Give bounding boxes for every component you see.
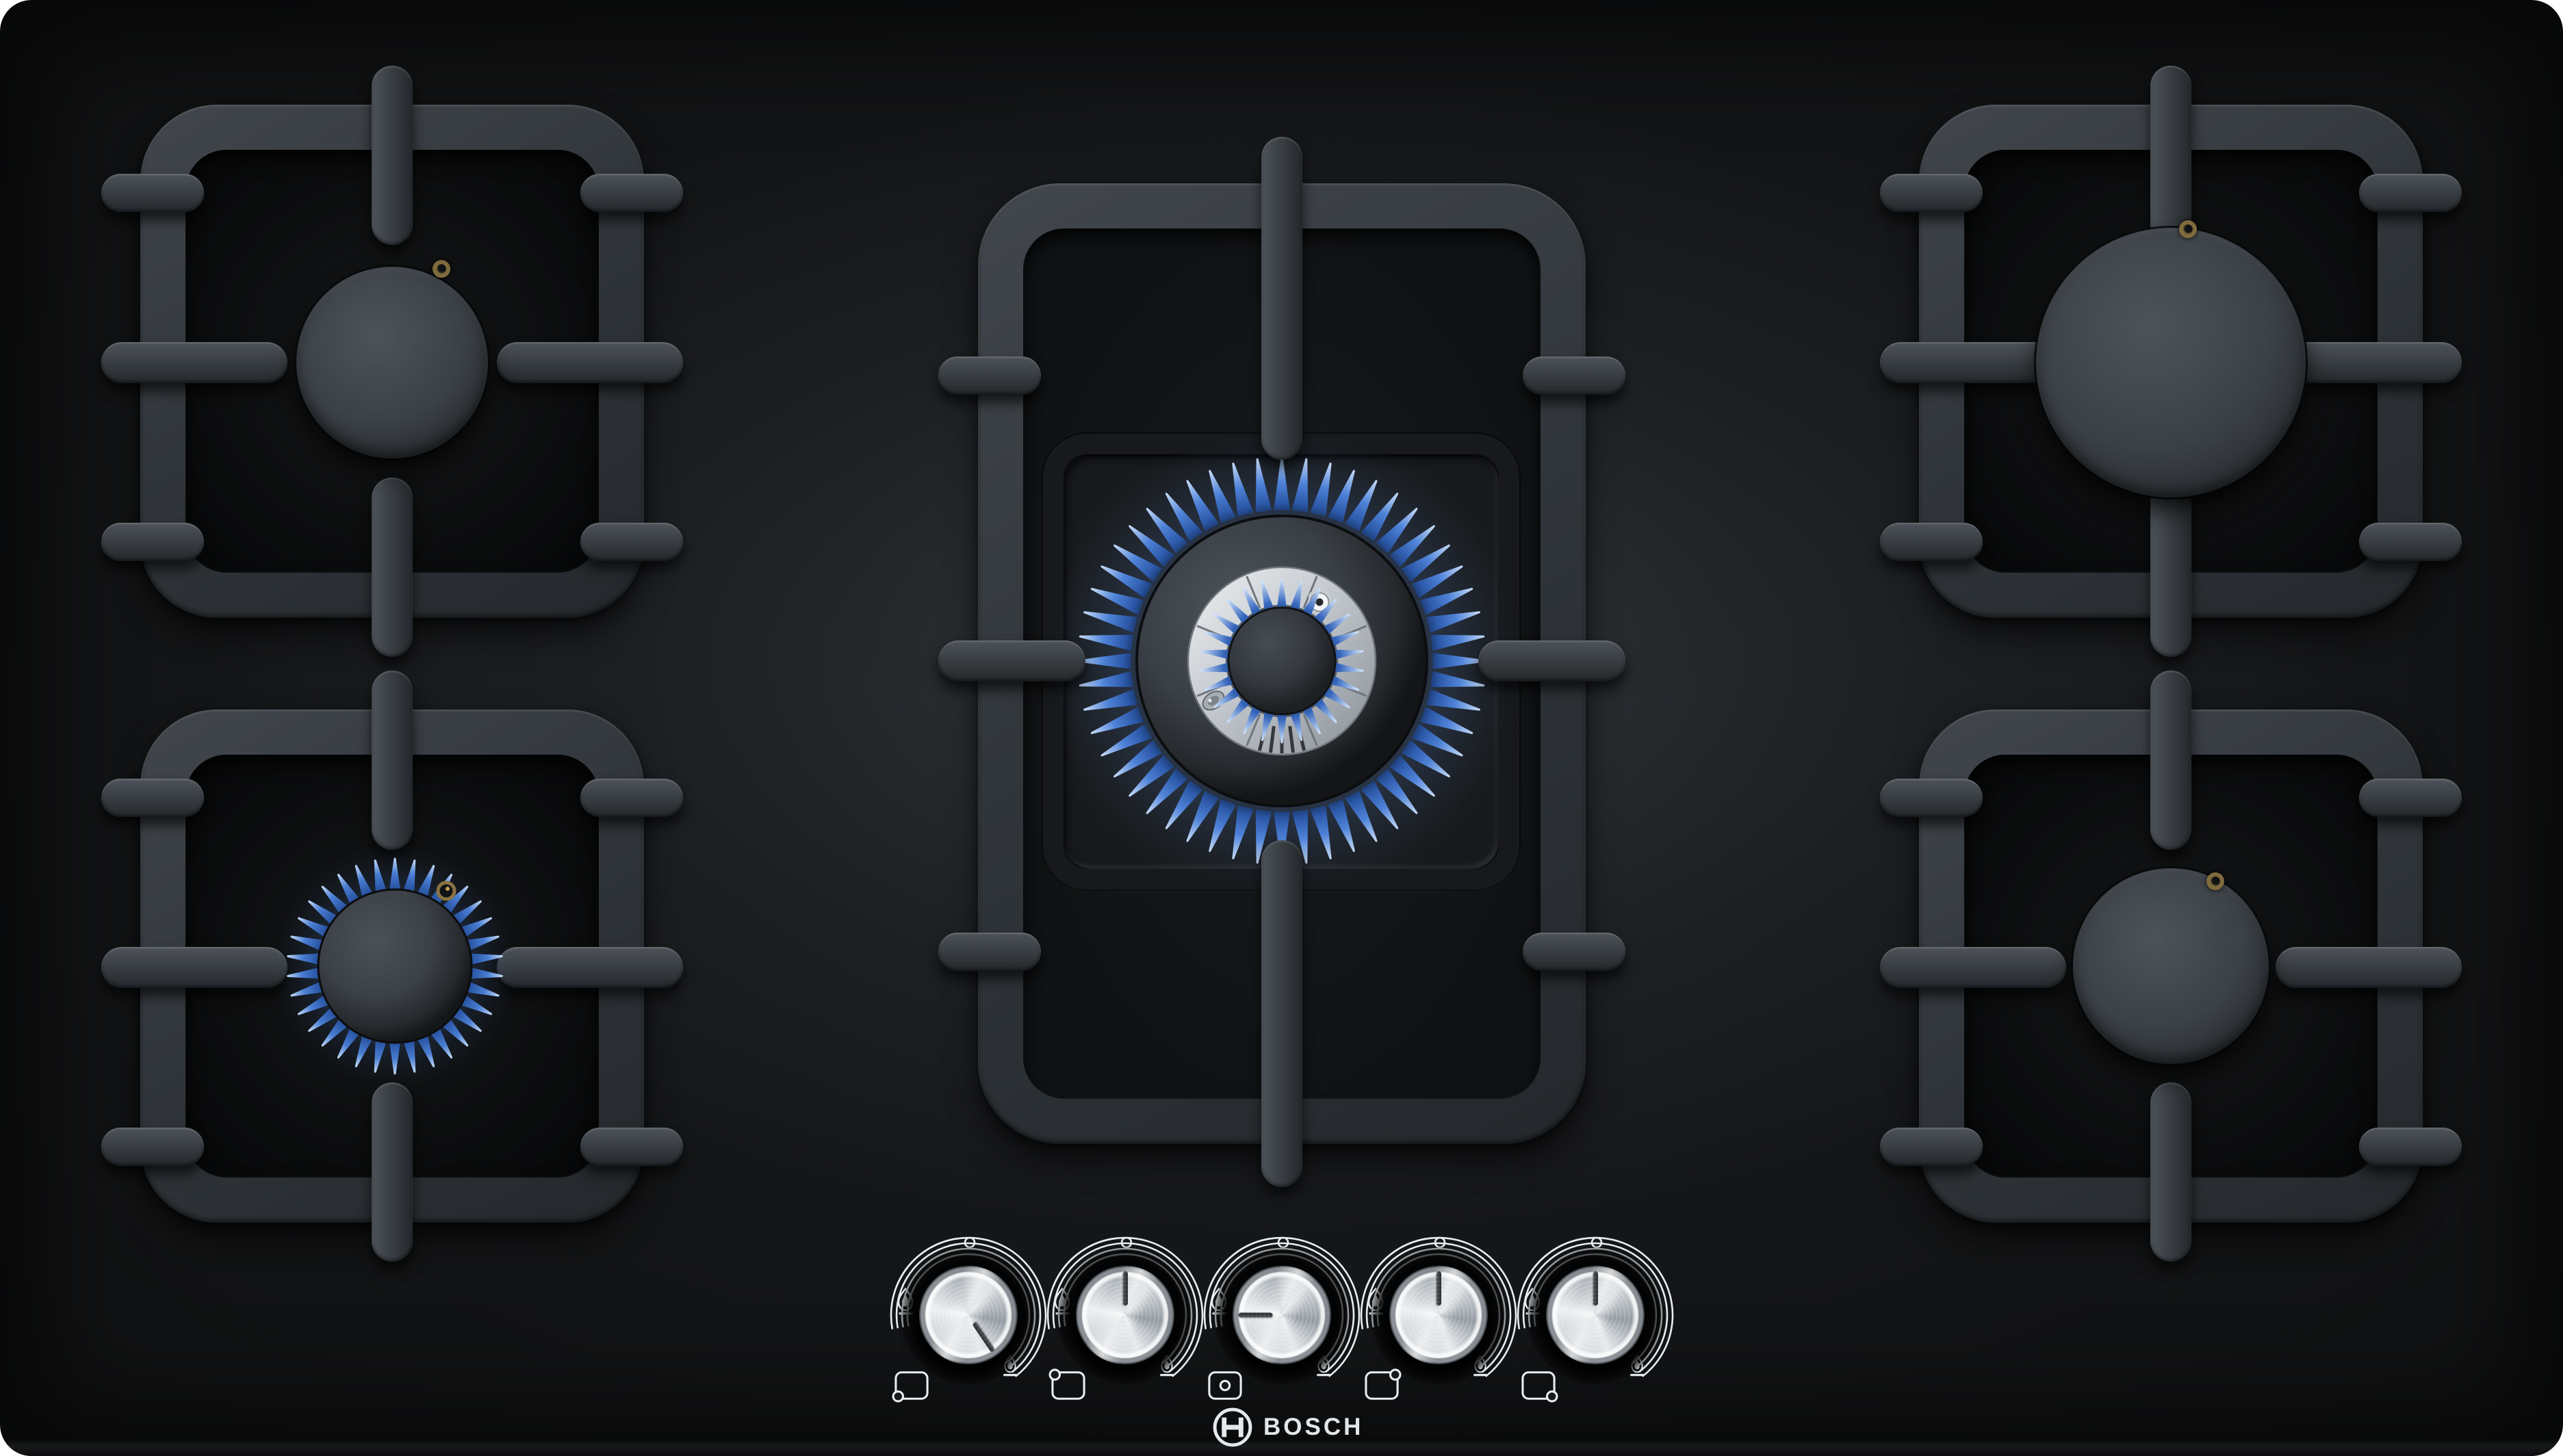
knob-center-wok[interactable] <box>1193 1226 1371 1431</box>
grate-stub <box>2359 174 2462 212</box>
bosch-logo: BOSCH <box>1212 1407 1363 1448</box>
spark-igniter-icon <box>438 883 454 899</box>
grate-stub <box>580 523 683 561</box>
grate-stub <box>101 1128 204 1166</box>
grate-finger <box>372 671 413 850</box>
spark-igniter-icon <box>2206 872 2224 890</box>
grate-stub <box>2359 523 2462 561</box>
knob-pointer <box>1238 1313 1272 1318</box>
burner-position-icon <box>892 1368 931 1403</box>
grate-finger <box>2150 671 2191 850</box>
grate-finger <box>101 947 287 988</box>
grate-finger <box>2150 478 2191 657</box>
burner-dot <box>893 1392 903 1401</box>
grate-finger <box>497 947 683 988</box>
grate-stub <box>101 779 204 817</box>
burner-cap-back-right <box>2036 228 2306 497</box>
burner-dot <box>1220 1381 1229 1390</box>
burner-position-icon <box>1519 1368 1558 1403</box>
product-photo-stage: BOSCH <box>0 0 2563 1456</box>
wok-inner-cap <box>1228 608 1335 714</box>
grate-finger <box>2150 66 2191 245</box>
knob-dial[interactable] <box>1076 1266 1174 1364</box>
burner-dot <box>1391 1370 1400 1379</box>
grate-stub <box>101 174 204 212</box>
burner-cap-back-left <box>296 267 488 458</box>
knob-dial[interactable] <box>919 1266 1018 1364</box>
grate-stub <box>580 174 683 212</box>
knob-pointer <box>1593 1271 1598 1305</box>
grate-finger <box>2276 947 2462 988</box>
knob-dial[interactable] <box>1389 1266 1488 1364</box>
knob-front-left[interactable] <box>879 1226 1057 1431</box>
knob-dial[interactable] <box>1546 1266 1645 1364</box>
grate-finger <box>101 342 287 383</box>
grate-finger <box>372 478 413 657</box>
knob-pointer <box>1437 1271 1441 1305</box>
grate-stub <box>580 779 683 817</box>
knob-front-right[interactable] <box>1506 1226 1684 1431</box>
burner-cap-front-right <box>2073 868 2269 1064</box>
gas-hob-glass-surface: BOSCH <box>0 0 2563 1456</box>
grate-stub <box>1880 523 1983 561</box>
grate-stub <box>101 523 204 561</box>
grate-finger <box>2150 1082 2191 1262</box>
grate-finger <box>1880 947 2066 988</box>
grate-stub <box>1880 779 1983 817</box>
burner-dot <box>1050 1370 1059 1379</box>
burner-cap-front-left <box>318 889 472 1043</box>
grate-stub <box>1880 1128 1983 1166</box>
grate-stub <box>1880 174 1983 212</box>
spark-igniter-icon <box>433 260 450 278</box>
knob-back-left[interactable] <box>1036 1226 1214 1431</box>
grate-finger <box>372 1082 413 1262</box>
knob-back-right[interactable] <box>1350 1226 1528 1431</box>
grate-finger <box>497 342 683 383</box>
knob-pointer <box>972 1322 995 1353</box>
bosch-armature-icon <box>1212 1407 1253 1448</box>
burner-position-icon <box>1048 1368 1088 1403</box>
knob-dial[interactable] <box>1233 1266 1331 1364</box>
burner-front-left-lit <box>272 843 518 1089</box>
grate-stub <box>2359 1128 2462 1166</box>
burner-center-wok-lit <box>1022 401 1542 921</box>
knob-pointer <box>1123 1271 1128 1305</box>
grate-stub <box>580 1128 683 1166</box>
spark-igniter-icon <box>2179 220 2197 238</box>
burner-position-icon <box>1205 1368 1245 1403</box>
burner-dot <box>1547 1392 1557 1401</box>
burner-position-icon <box>1362 1368 1402 1403</box>
grate-stub <box>2359 779 2462 817</box>
grate-finger <box>372 66 413 245</box>
brand-name: BOSCH <box>1263 1407 1363 1448</box>
